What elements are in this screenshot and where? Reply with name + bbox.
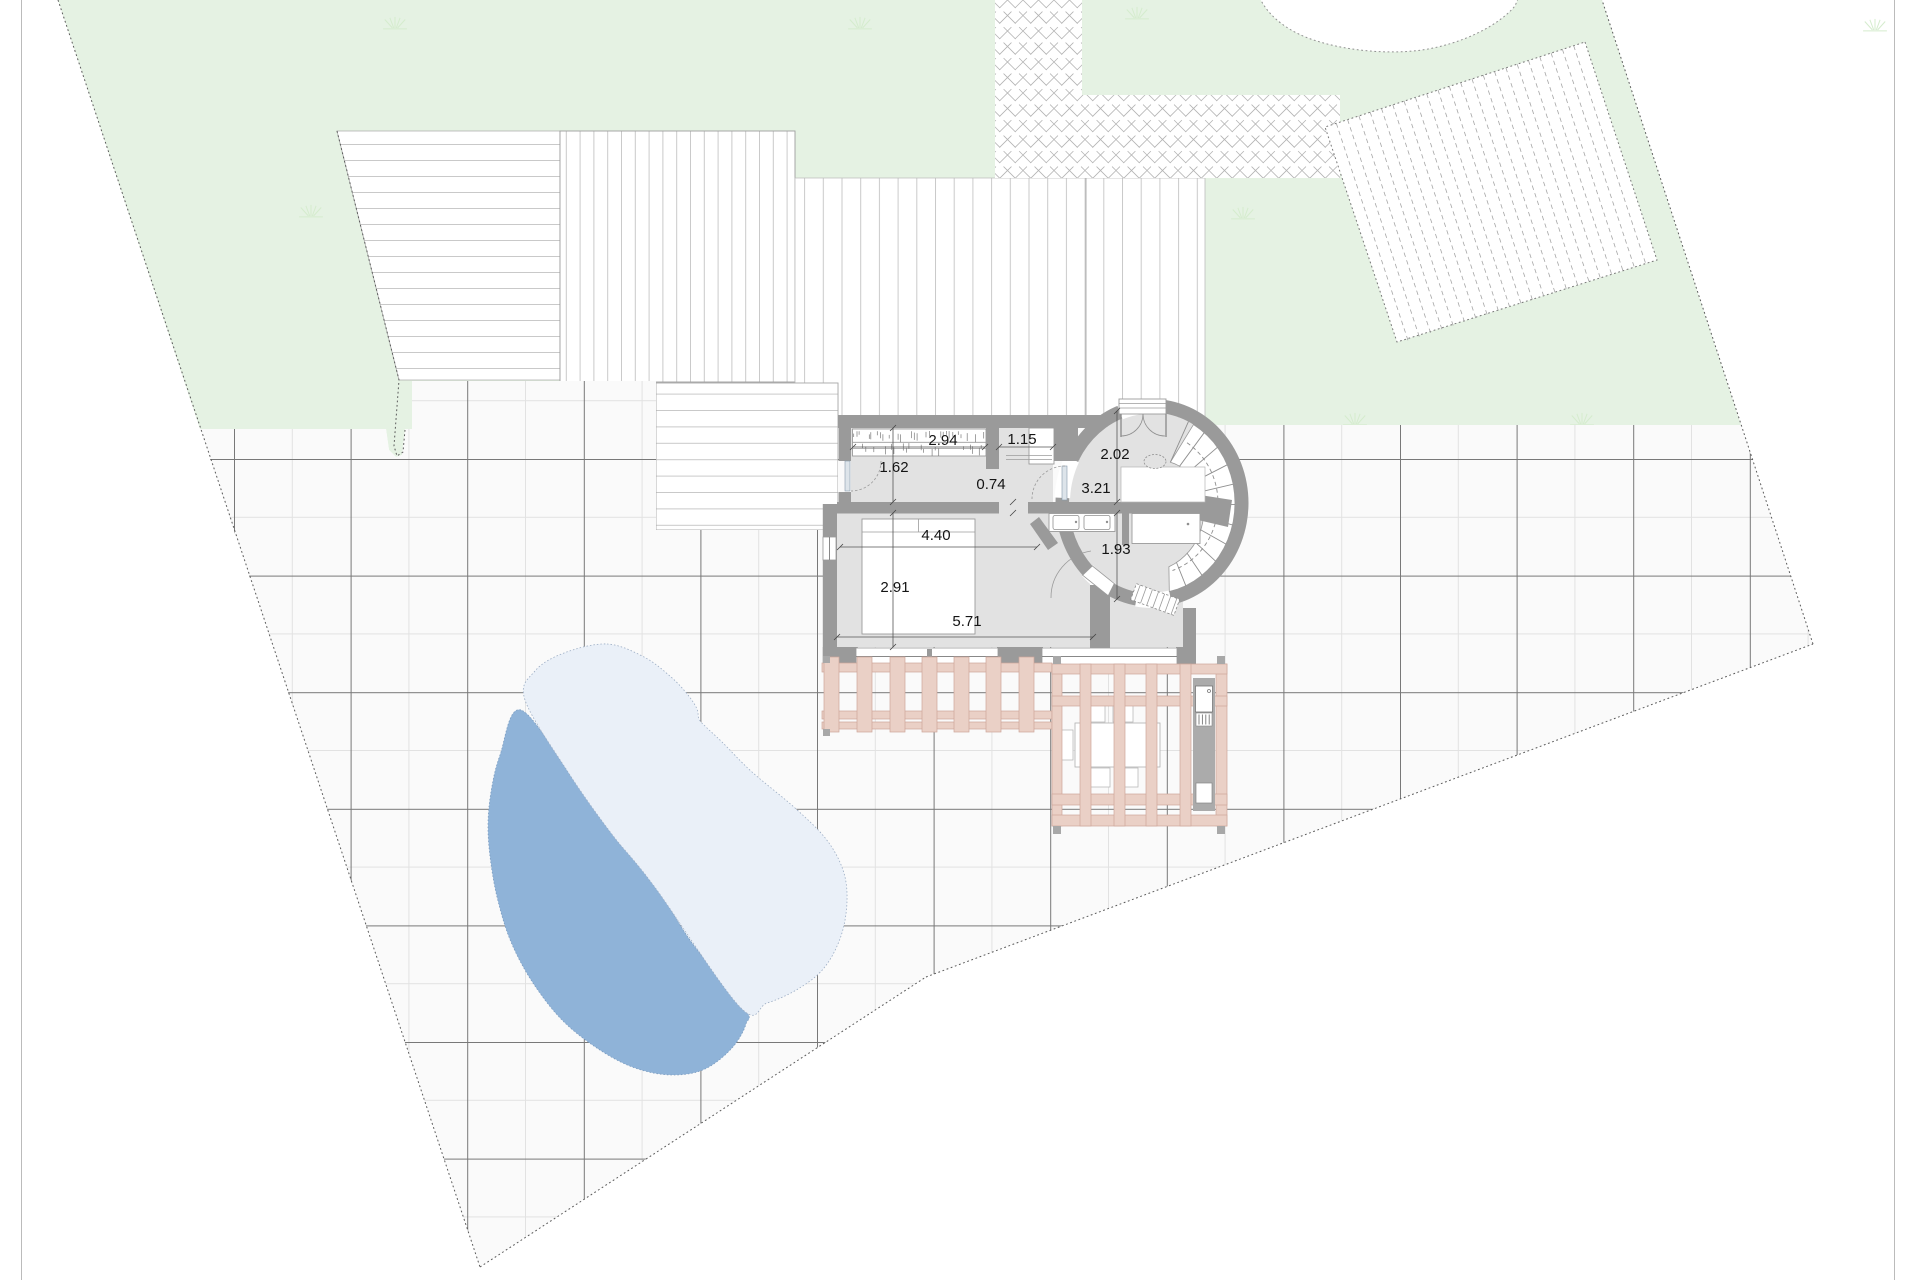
svg-text:1.62: 1.62 [879, 459, 908, 476]
svg-text:0.74: 0.74 [976, 476, 1005, 493]
svg-text:5.71: 5.71 [952, 613, 981, 630]
svg-text:2.91: 2.91 [880, 579, 909, 596]
svg-text:1.93: 1.93 [1101, 541, 1130, 558]
svg-text:2.02: 2.02 [1100, 446, 1129, 463]
svg-text:3.21: 3.21 [1081, 480, 1110, 497]
svg-text:1.15: 1.15 [1007, 431, 1036, 448]
svg-text:4.40: 4.40 [921, 527, 950, 544]
svg-text:2.94: 2.94 [928, 432, 957, 449]
